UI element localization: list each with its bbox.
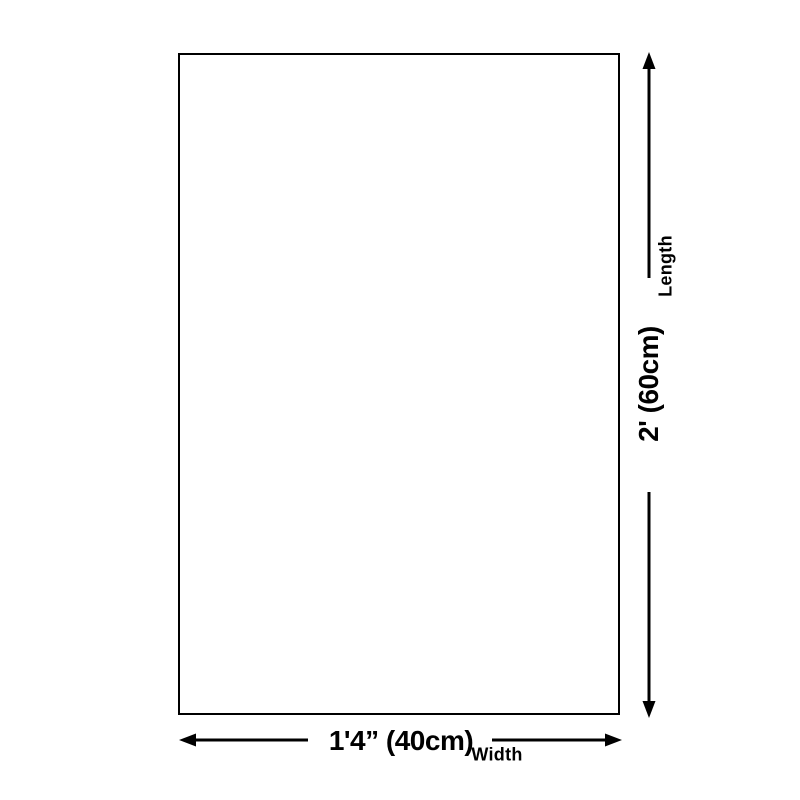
arrow-left-icon bbox=[179, 734, 196, 747]
arrow-up-icon bbox=[643, 52, 656, 69]
length-label: Length bbox=[656, 235, 677, 297]
length-value: 2' (60cm) bbox=[633, 326, 665, 442]
width-label: Width bbox=[471, 745, 522, 766]
product-outline bbox=[178, 53, 620, 715]
dimension-diagram: 1'4” (40cm) Width 2' (60cm) Length bbox=[0, 0, 800, 800]
arrow-down-icon bbox=[643, 701, 656, 718]
arrow-right-icon bbox=[605, 734, 622, 747]
width-value: 1'4” (40cm) bbox=[329, 725, 473, 757]
